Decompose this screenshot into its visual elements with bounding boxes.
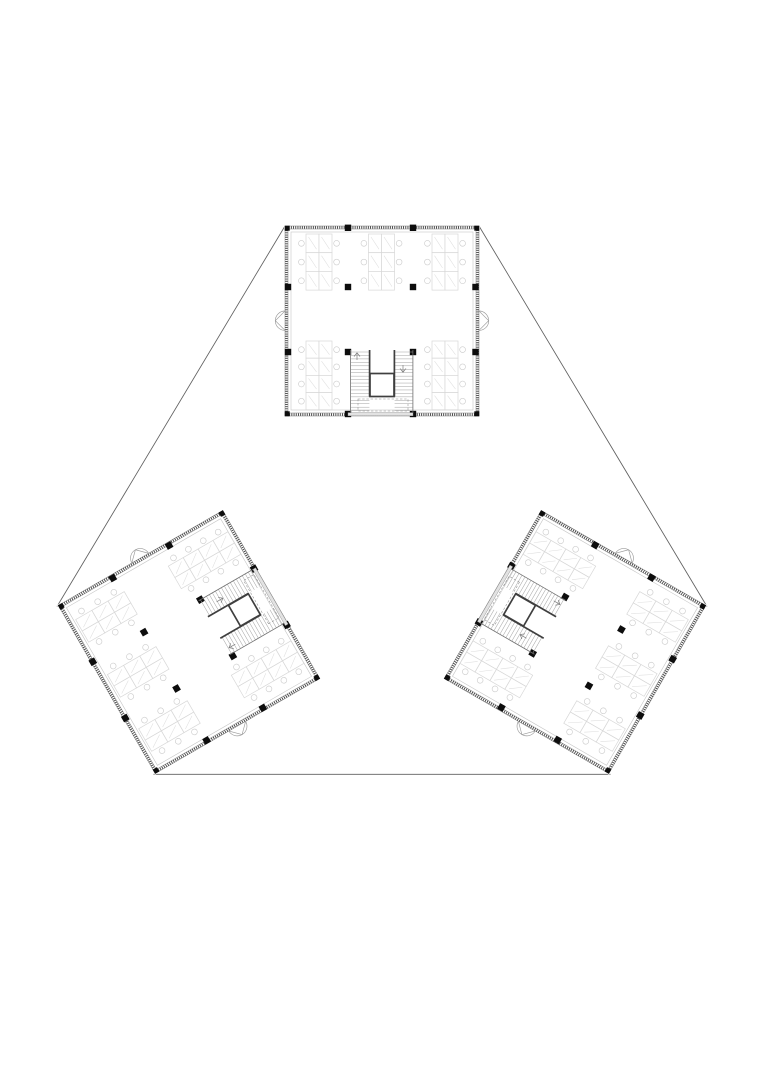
building-block-top — [275, 225, 488, 418]
floor-plan-canvas — [0, 0, 764, 1080]
building-block-left — [52, 501, 325, 782]
drawing-page — [0, 0, 764, 1080]
building-block-right — [438, 501, 711, 782]
